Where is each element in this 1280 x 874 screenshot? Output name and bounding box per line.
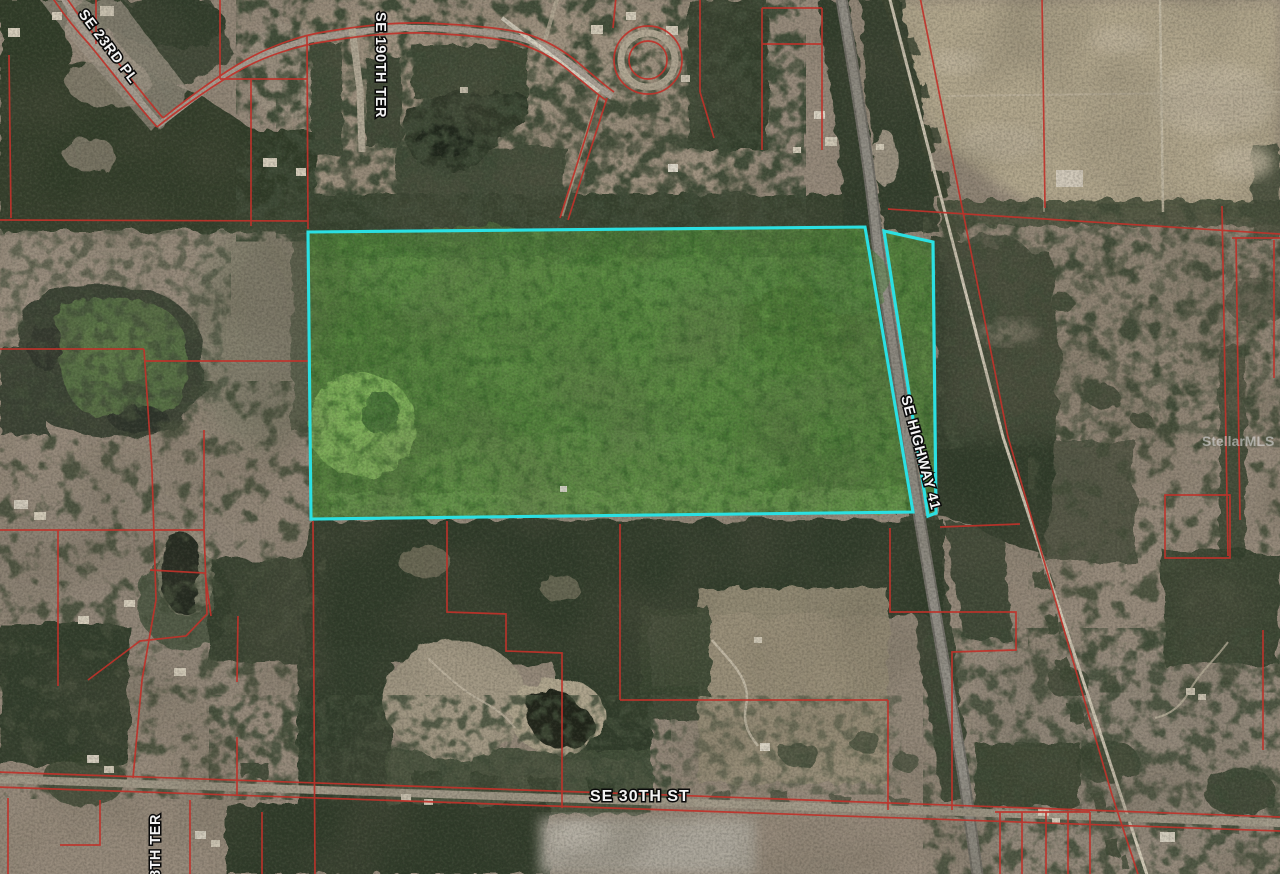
svg-text:StellarMLS: StellarMLS: [1202, 433, 1274, 449]
svg-text:SE 190TH TER: SE 190TH TER: [372, 12, 388, 118]
svg-text:8TH TER: 8TH TER: [148, 814, 164, 874]
svg-text:SE 30TH ST: SE 30TH ST: [590, 788, 690, 805]
